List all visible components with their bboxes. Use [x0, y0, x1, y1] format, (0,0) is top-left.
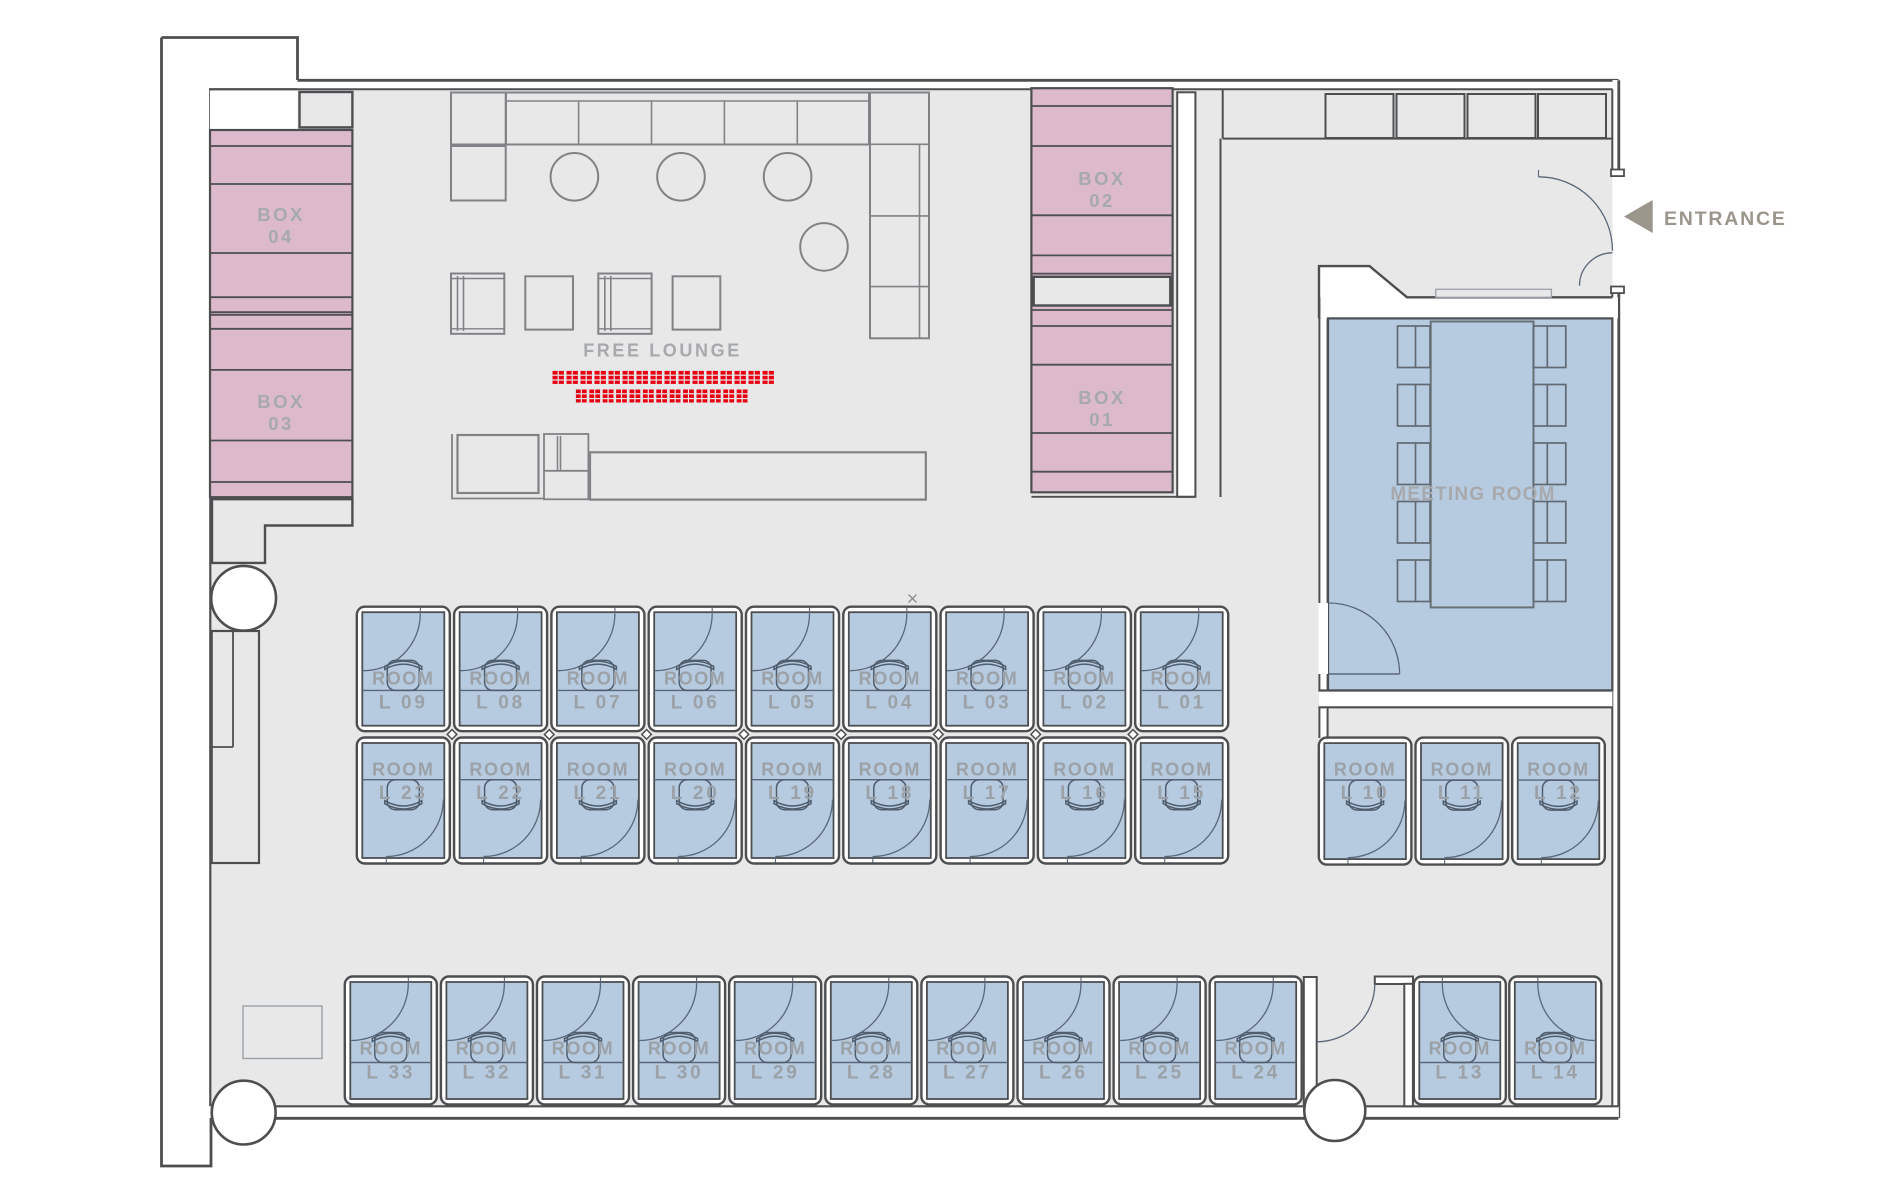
svg-text:ROOM: ROOM [840, 1039, 902, 1059]
svg-text:ROOM: ROOM [360, 1039, 422, 1059]
svg-text:L 31: L 31 [559, 1062, 608, 1083]
svg-text:L 24: L 24 [1231, 1062, 1280, 1083]
svg-text:03: 03 [268, 413, 294, 434]
svg-text:BOX: BOX [257, 391, 305, 412]
svg-text:ROOM: ROOM [1128, 1039, 1190, 1059]
svg-text:L 32: L 32 [462, 1062, 511, 1083]
svg-text:ROOM: ROOM [936, 1039, 998, 1059]
svg-text:ROOM: ROOM [552, 1039, 614, 1059]
svg-text:L 07: L 07 [573, 693, 622, 714]
svg-text:L 29: L 29 [751, 1062, 800, 1083]
svg-text:BOX: BOX [257, 204, 305, 225]
svg-text:ROOM: ROOM [1524, 1039, 1586, 1059]
svg-text:L 18: L 18 [865, 783, 914, 804]
svg-text:L 26: L 26 [1039, 1062, 1088, 1083]
svg-text:ROOM: ROOM [1150, 760, 1212, 780]
svg-text:ROOM: ROOM [859, 669, 921, 689]
svg-text:ROOM: ROOM [1334, 760, 1396, 780]
svg-text:FREE LOUNGE: FREE LOUNGE [583, 341, 742, 361]
svg-text:L 09: L 09 [379, 693, 428, 714]
svg-text:ROOM: ROOM [1224, 1039, 1286, 1059]
svg-text:ROOM: ROOM [469, 669, 531, 689]
svg-text:ROOM: ROOM [469, 760, 531, 780]
svg-text:L 06: L 06 [671, 693, 720, 714]
svg-text:ROOM: ROOM [1150, 669, 1212, 689]
svg-text:L 04: L 04 [865, 693, 914, 714]
svg-text:ROOM: ROOM [648, 1039, 710, 1059]
svg-text:L 30: L 30 [655, 1062, 704, 1083]
svg-text:L 17: L 17 [963, 783, 1012, 804]
svg-text:L 15: L 15 [1157, 783, 1206, 804]
svg-text:L 01: L 01 [1157, 693, 1206, 714]
svg-text:BOX: BOX [1078, 168, 1126, 189]
svg-text:ROOM: ROOM [567, 760, 629, 780]
svg-text:L 33: L 33 [366, 1062, 415, 1083]
svg-text:ROOM: ROOM [744, 1039, 806, 1059]
svg-text:L 25: L 25 [1135, 1062, 1184, 1083]
svg-text:01: 01 [1089, 409, 1115, 430]
svg-text:ROOM: ROOM [956, 669, 1018, 689]
svg-text:L 10: L 10 [1341, 783, 1390, 804]
svg-text:ROOM: ROOM [761, 760, 823, 780]
svg-text:ENTRANCE: ENTRANCE [1664, 208, 1787, 230]
svg-text:L 08: L 08 [476, 693, 525, 714]
svg-text:L 21: L 21 [573, 783, 622, 804]
svg-text:ROOM: ROOM [1053, 760, 1115, 780]
svg-text:L 23: L 23 [379, 783, 428, 804]
svg-text:ROOM: ROOM [372, 669, 434, 689]
svg-text:ROOM: ROOM [956, 760, 1018, 780]
svg-text:ROOM: ROOM [664, 760, 726, 780]
svg-text:L 22: L 22 [476, 783, 525, 804]
svg-text:L 05: L 05 [768, 693, 817, 714]
svg-text:MEETING ROOM: MEETING ROOM [1390, 484, 1555, 505]
svg-text:ROOM: ROOM [761, 669, 823, 689]
svg-text:ROOM: ROOM [1053, 669, 1115, 689]
svg-text:L 03: L 03 [963, 693, 1012, 714]
svg-text:L 11: L 11 [1438, 783, 1486, 804]
svg-text:ROOM: ROOM [1429, 1039, 1491, 1059]
svg-text:L 19: L 19 [768, 783, 817, 804]
svg-text:ROOM: ROOM [1527, 760, 1589, 780]
svg-text:ROOM: ROOM [859, 760, 921, 780]
svg-text:ROOM: ROOM [664, 669, 726, 689]
svg-text:ROOM: ROOM [372, 760, 434, 780]
svg-text:BOX: BOX [1078, 387, 1126, 408]
svg-text:02: 02 [1089, 190, 1115, 211]
svg-text:L 27: L 27 [943, 1062, 992, 1083]
svg-text:L 14: L 14 [1531, 1062, 1580, 1083]
svg-text:ROOM: ROOM [456, 1039, 518, 1059]
svg-text:ROOM: ROOM [567, 669, 629, 689]
svg-text:L 12: L 12 [1534, 783, 1583, 804]
svg-text:L 28: L 28 [847, 1062, 896, 1083]
svg-text:L 13: L 13 [1435, 1062, 1484, 1083]
svg-text:ROOM: ROOM [1032, 1039, 1094, 1059]
svg-text:L 16: L 16 [1060, 783, 1109, 804]
svg-text:L 20: L 20 [671, 783, 720, 804]
svg-text:ROOM: ROOM [1431, 760, 1493, 780]
svg-text:04: 04 [268, 226, 294, 247]
svg-text:L 02: L 02 [1060, 693, 1109, 714]
